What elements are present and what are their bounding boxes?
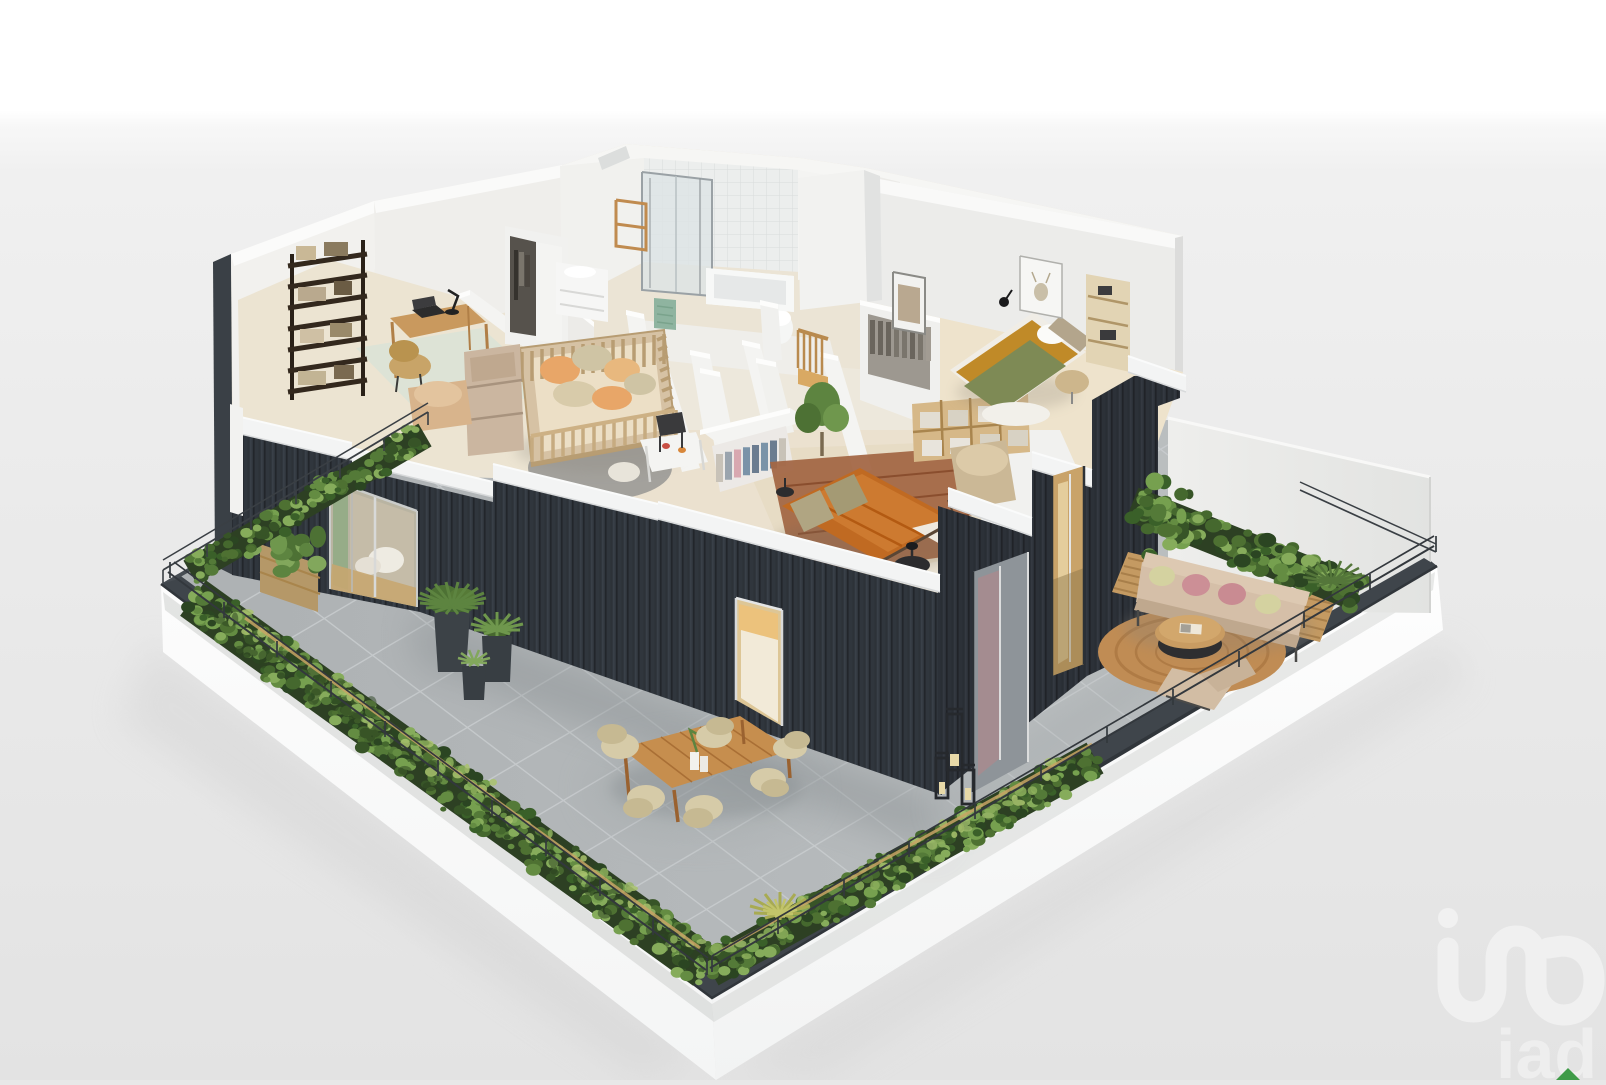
svg-text:iad: iad (1496, 1015, 1597, 1080)
